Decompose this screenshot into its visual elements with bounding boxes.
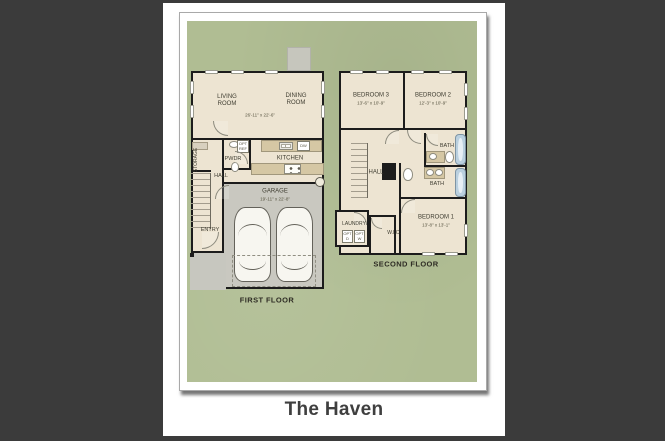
hall-second-label: HALL <box>368 170 383 177</box>
wall <box>399 197 467 199</box>
window-icon <box>411 70 424 74</box>
toilet-icon <box>445 151 454 163</box>
plan-title: The Haven <box>163 399 505 421</box>
storage-label: STORAGE <box>194 148 200 172</box>
bath-lower-label: BATH <box>430 181 444 187</box>
bath-upper-label: BATH <box>440 143 454 149</box>
opt-washer-label: OPT W <box>355 232 363 241</box>
wall <box>403 71 405 130</box>
parking-outline <box>232 255 316 287</box>
sink-icon <box>435 169 443 176</box>
window-icon <box>376 70 389 74</box>
window-icon <box>190 81 194 94</box>
wall <box>369 215 396 217</box>
porch <box>287 47 311 71</box>
window-icon <box>464 224 468 237</box>
window-icon <box>190 105 194 118</box>
window-icon <box>422 252 435 256</box>
floorplan-card: OPT REF DW LIVING ROOM DINING ROOM 26'- <box>179 12 487 391</box>
window-icon <box>464 83 468 96</box>
opt-ref-label: OPT REF <box>239 142 247 151</box>
photo-panel: OPT REF DW LIVING ROOM DINING ROOM 26'- <box>163 3 505 436</box>
wic-label: W.I.C. <box>387 231 401 237</box>
second-floor-caption: SECOND FLOOR <box>373 261 438 270</box>
dining-room-label: DINING ROOM <box>286 93 307 107</box>
staircase-first-floor <box>191 173 211 229</box>
bedroom2-dimension: 12'-3" x 10'-9" <box>419 100 447 105</box>
staircase-second-floor <box>351 143 368 198</box>
tub-icon <box>455 134 466 165</box>
kitchen-sink-icon <box>279 142 293 150</box>
window-icon <box>445 252 458 256</box>
window-icon <box>350 70 363 74</box>
window-icon <box>205 70 218 74</box>
driveway <box>190 253 226 290</box>
hall-label: HALL <box>214 173 228 179</box>
opt-dryer-label: OPT D <box>343 232 351 241</box>
stove-icon <box>284 164 301 174</box>
toilet-icon <box>403 168 413 181</box>
sink-icon <box>426 169 434 176</box>
entry-label: ENTRY <box>201 227 220 233</box>
dishwasher-box: DW <box>297 141 310 151</box>
garage-dimension: 19'-11" x 22'-8" <box>260 196 290 201</box>
window-icon <box>439 70 452 74</box>
window-icon <box>231 70 244 74</box>
great-room-dimension: 26'-11" x 22'-6" <box>245 112 275 117</box>
living-room-label: LIVING ROOM <box>217 94 237 108</box>
utility-chase <box>382 163 396 180</box>
tub-icon <box>455 168 466 197</box>
dishwasher-label: DW <box>300 144 307 148</box>
laundry-label: LAUNDRY <box>342 222 366 228</box>
sink-icon <box>429 153 437 160</box>
kitchen-label: KITCHEN <box>277 156 303 163</box>
wall <box>190 253 194 257</box>
powder-room-label: PWDR <box>225 156 242 162</box>
garage-label: GARAGE <box>262 189 288 196</box>
first-floor-caption: FIRST FLOOR <box>240 297 294 306</box>
opt-dryer-box: OPT D <box>342 230 353 243</box>
bedroom1-dimension: 13'-8" x 13'-1" <box>422 222 450 227</box>
floorplan-image: OPT REF DW LIVING ROOM DINING ROOM 26'- <box>187 21 477 382</box>
bedroom1-label: BEDROOM 1 <box>418 215 454 222</box>
window-icon <box>321 81 325 94</box>
window-icon <box>265 70 278 74</box>
bedroom3-label: BEDROOM 3 <box>353 93 389 100</box>
water-heater-icon <box>315 177 325 187</box>
bedroom2-label: BEDROOM 2 <box>415 93 451 100</box>
opt-washer-box: OPT W <box>354 230 365 243</box>
window-icon <box>464 107 468 120</box>
bedroom3-dimension: 13'-6" x 10'-9" <box>357 100 385 105</box>
window-icon <box>321 105 325 118</box>
lightbox-backdrop: OPT REF DW LIVING ROOM DINING ROOM 26'- <box>0 0 665 441</box>
